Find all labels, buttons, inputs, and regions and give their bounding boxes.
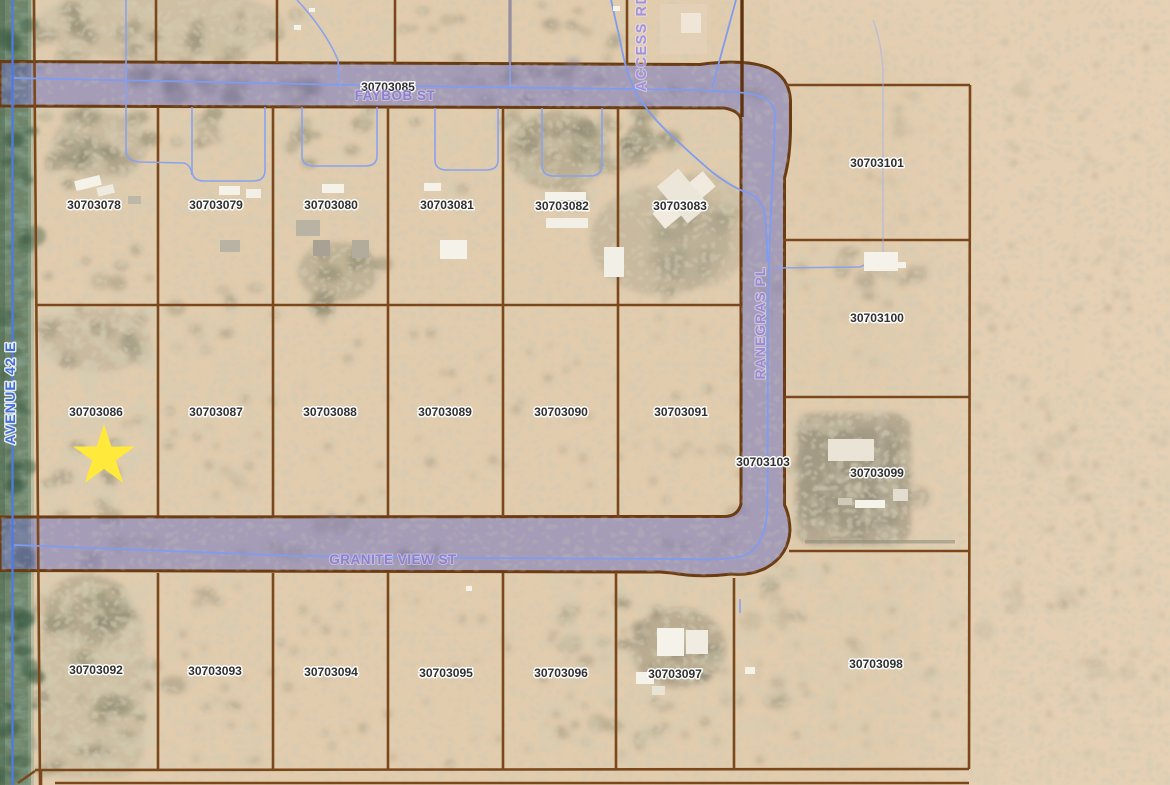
svg-text:30703100: 30703100 xyxy=(850,311,904,325)
svg-text:30703087: 30703087 xyxy=(189,405,243,419)
svg-text:RANEGRAS PL: RANEGRAS PL xyxy=(752,267,768,380)
svg-text:GRANITE VIEW ST: GRANITE VIEW ST xyxy=(329,552,457,567)
svg-text:30703081: 30703081 xyxy=(420,198,474,212)
svg-text:30703099: 30703099 xyxy=(850,466,904,480)
svg-text:30703101: 30703101 xyxy=(850,156,904,170)
svg-text:30703082: 30703082 xyxy=(535,199,589,213)
svg-text:30703078: 30703078 xyxy=(67,198,121,212)
svg-text:30703091: 30703091 xyxy=(654,405,708,419)
svg-text:30703096: 30703096 xyxy=(534,666,588,680)
svg-text:30703094: 30703094 xyxy=(304,665,358,679)
svg-text:FAYBOB ST: FAYBOB ST xyxy=(355,88,436,103)
svg-text:30703098: 30703098 xyxy=(849,657,903,671)
svg-text:30703103: 30703103 xyxy=(736,455,790,469)
svg-text:30703088: 30703088 xyxy=(303,405,357,419)
svg-text:30703079: 30703079 xyxy=(189,198,243,212)
svg-text:30703092: 30703092 xyxy=(69,663,123,677)
svg-text:30703097: 30703097 xyxy=(648,667,702,681)
svg-text:ACCESS RD: ACCESS RD xyxy=(634,0,650,91)
svg-text:30703080: 30703080 xyxy=(304,198,358,212)
svg-text:30703089: 30703089 xyxy=(418,405,472,419)
svg-text:30703090: 30703090 xyxy=(534,405,588,419)
svg-text:30703083: 30703083 xyxy=(653,199,707,213)
svg-text:AVENUE 42 E: AVENUE 42 E xyxy=(2,341,18,444)
svg-text:30703095: 30703095 xyxy=(419,666,473,680)
svg-text:30703086: 30703086 xyxy=(69,405,123,419)
svg-text:30703093: 30703093 xyxy=(188,664,242,678)
